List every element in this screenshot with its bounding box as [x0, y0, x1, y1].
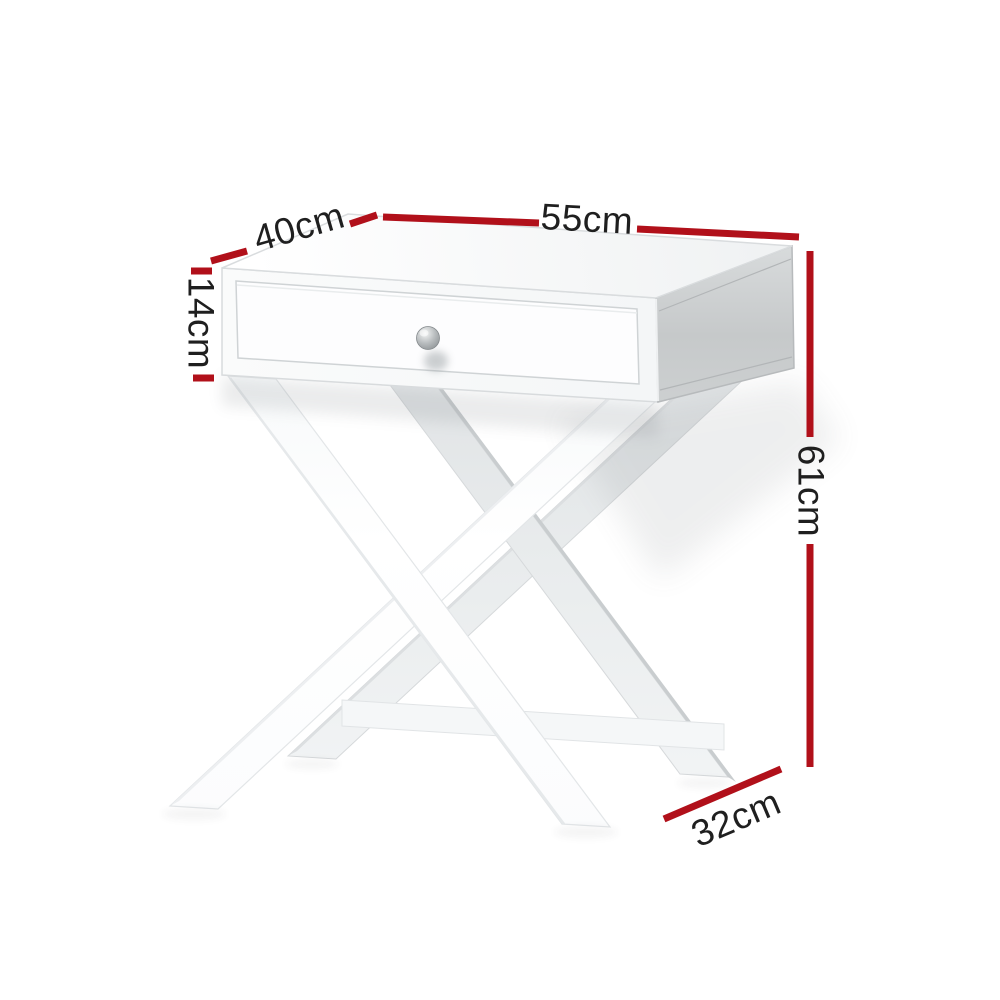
dimension-drawer-height: 14cm [181, 271, 222, 378]
dim-55cm-segment-right [637, 229, 799, 237]
drawer-knob-highlight [420, 330, 429, 337]
table-render [162, 214, 840, 838]
dim-32cm-label: 32cm [685, 781, 786, 855]
diagram-canvas: 40cm 55cm 14cm 61cm 32cm [0, 0, 1000, 1000]
knob-shadow [424, 351, 448, 371]
dim-55cm-label: 55cm [540, 196, 635, 242]
product-dimension-diagram: 40cm 55cm 14cm 61cm 32cm [0, 0, 1000, 1000]
front-leg-descending-slat-shade [230, 378, 564, 824]
drawer-knob [417, 327, 440, 350]
dim-61cm-label: 61cm [791, 445, 832, 537]
dimension-total-height: 61cm [791, 251, 832, 767]
dim-14cm-label: 14cm [181, 277, 222, 369]
